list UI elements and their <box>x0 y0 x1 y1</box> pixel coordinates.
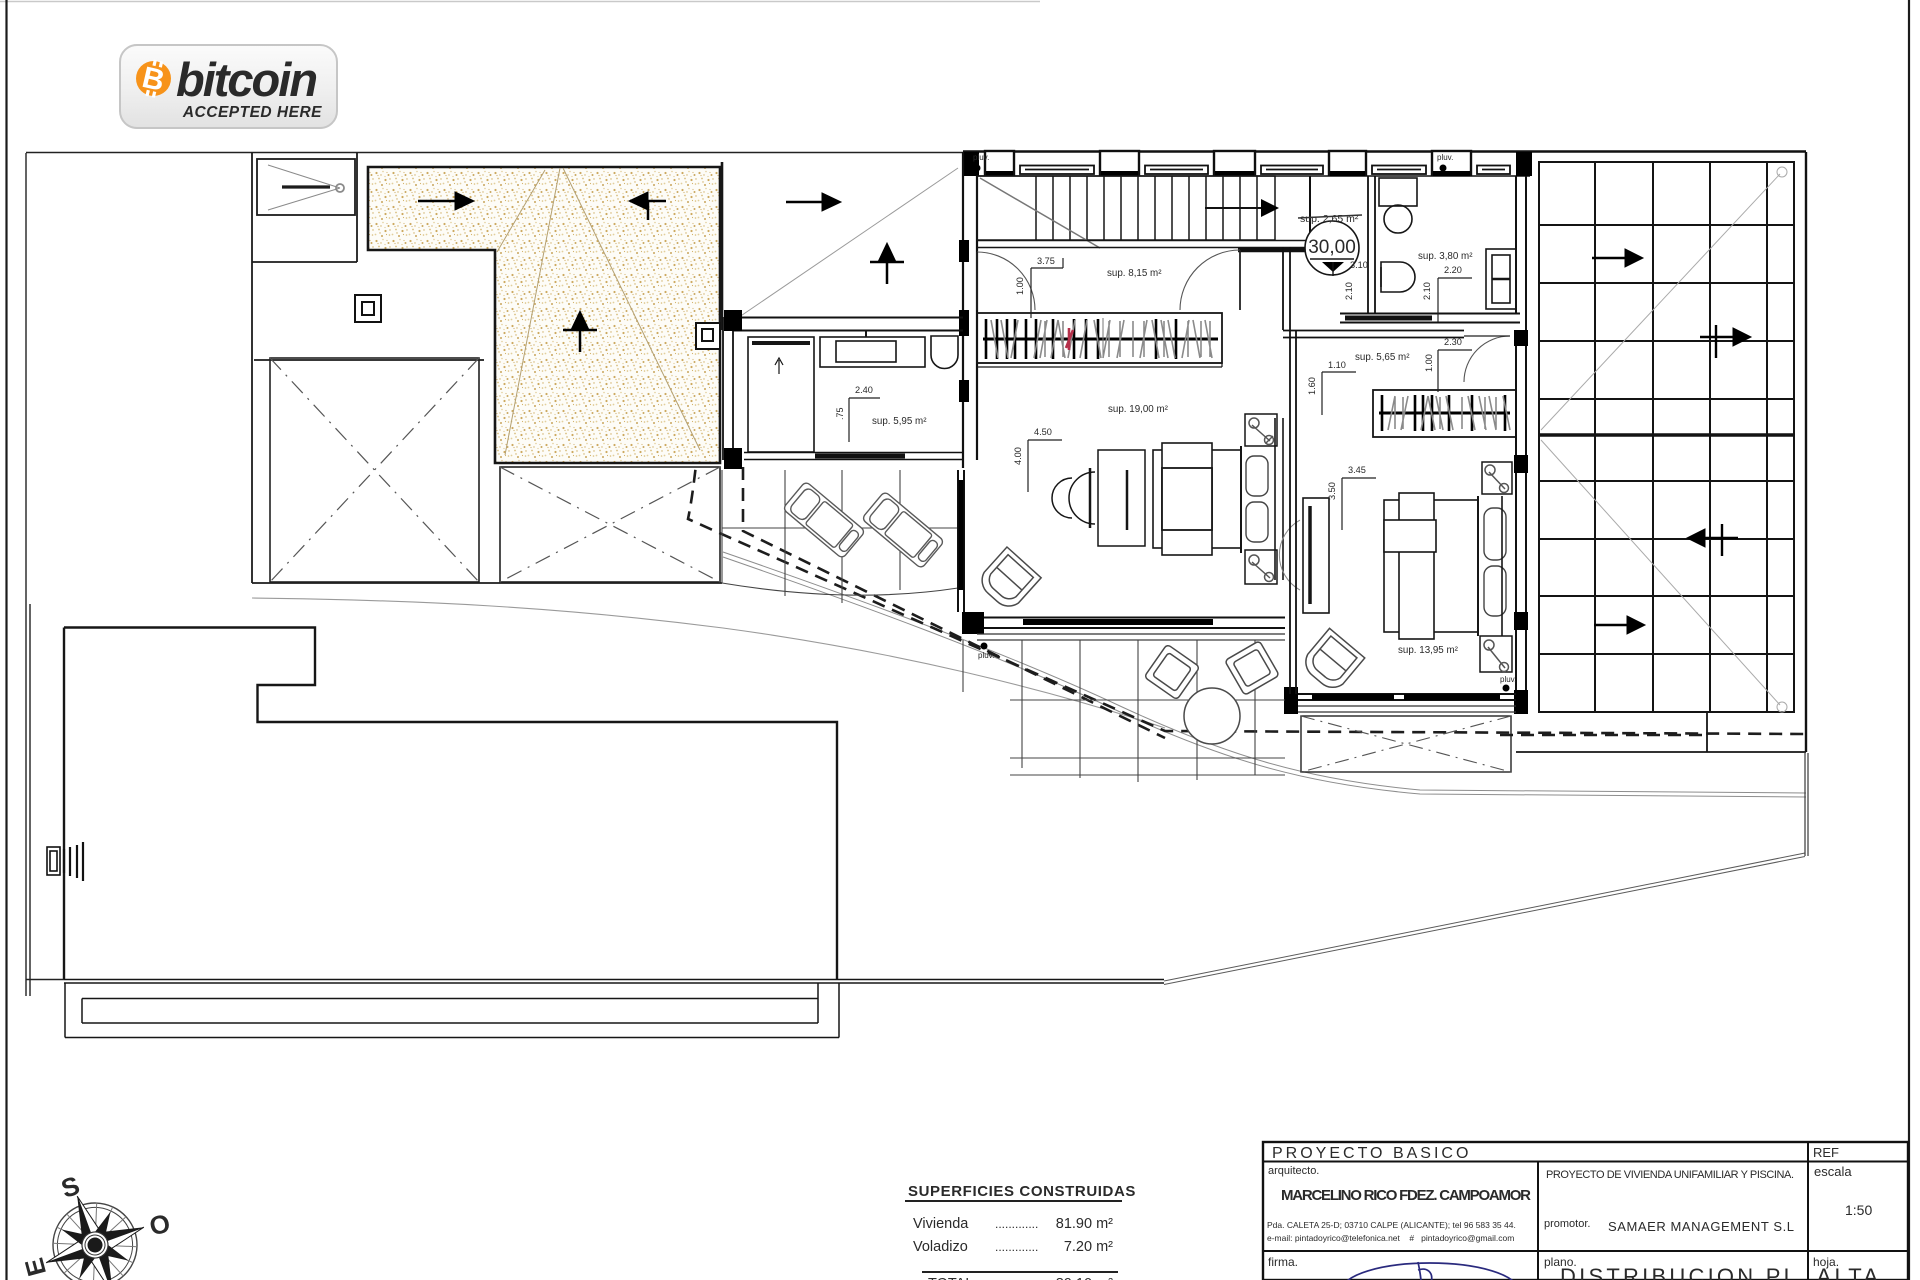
svg-text:e-mail: pintadoyrico@telefoni: e-mail: pintadoyrico@telefonica.net # pi… <box>1267 1233 1514 1243</box>
svg-text:PROYECTO DE VIVIENDA UNIFAMILI: PROYECTO DE VIVIENDA UNIFAMILIAR Y PISCI… <box>1546 1169 1794 1181</box>
svg-text:.............: ............. <box>995 1217 1038 1231</box>
svg-text:2.10: 2.10 <box>1422 282 1432 300</box>
svg-text:pluv.: pluv. <box>978 651 994 660</box>
svg-text:3.50: 3.50 <box>1327 482 1337 500</box>
svg-text:3.10: 3.10 <box>1350 260 1368 270</box>
svg-text:Pda. CALETA 25-D; 03710 CA: Pda. CALETA 25-D; 03710 CALPE (ALICANTE)… <box>1267 1220 1516 1230</box>
svg-text:1.00: 1.00 <box>1015 277 1025 295</box>
svg-text:1:50: 1:50 <box>1845 1202 1872 1218</box>
svg-text:1.00: 1.00 <box>1424 354 1434 372</box>
svg-text:2.40: 2.40 <box>855 385 873 395</box>
svg-text:81.90 m²: 81.90 m² <box>1056 1216 1113 1232</box>
svg-text:4.00: 4.00 <box>1013 447 1023 465</box>
svg-text:3.75: 3.75 <box>1037 256 1055 266</box>
svg-text:PROYECTO BASICO: PROYECTO BASICO <box>1272 1145 1471 1162</box>
svg-text:escala: escala <box>1814 1164 1852 1179</box>
svg-text:Vivienda: Vivienda <box>913 1216 969 1232</box>
svg-text:2.30: 2.30 <box>1444 337 1462 347</box>
svg-text:MARCELINO RICO FDEZ. CAMPOAMOR: MARCELINO RICO FDEZ. CAMPOAMOR <box>1281 1187 1531 1204</box>
svg-text:1.10: 1.10 <box>1328 360 1346 370</box>
svg-text:2.20: 2.20 <box>1444 265 1462 275</box>
svg-text:pluv.: pluv. <box>973 153 989 162</box>
svg-text:promotor.: promotor. <box>1544 1218 1590 1230</box>
svg-text:ACCEPTED HERE: ACCEPTED HERE <box>182 104 322 121</box>
svg-text:sup. 19,00 m²: sup. 19,00 m² <box>1108 404 1169 415</box>
svg-text:1.60: 1.60 <box>1307 377 1317 395</box>
svg-text:7.20 m²: 7.20 m² <box>1064 1239 1113 1255</box>
svg-text:sup. 13,95 m²: sup. 13,95 m² <box>1398 645 1459 656</box>
svg-text:2.10: 2.10 <box>1344 282 1354 300</box>
svg-text:arquitecto.: arquitecto. <box>1268 1165 1319 1177</box>
svg-text:Voladizo: Voladizo <box>913 1239 968 1255</box>
svg-text:TOTAL: TOTAL <box>928 1276 973 1280</box>
svg-text:firma.: firma. <box>1268 1255 1298 1269</box>
svg-text:sup. 2,65 m²: sup. 2,65 m² <box>1300 213 1359 225</box>
svg-text:sup. 5,65 m²: sup. 5,65 m² <box>1355 352 1410 363</box>
svg-text:pluv.: pluv. <box>1437 153 1453 162</box>
svg-text:bitcoin: bitcoin <box>176 53 316 106</box>
svg-text:sup. 8,15 m²: sup. 8,15 m² <box>1107 268 1162 279</box>
svg-text:SUPERFICIES CONSTRUIDAS: SUPERFICIES CONSTRUIDAS <box>908 1183 1136 1200</box>
svg-text:30,00: 30,00 <box>1308 237 1356 258</box>
svg-text:REF: REF <box>1813 1145 1839 1160</box>
svg-text:sup. 5,95 m²: sup. 5,95 m² <box>872 416 927 427</box>
svg-text:4.50: 4.50 <box>1034 427 1052 437</box>
svg-text:pluv.: pluv. <box>1500 675 1516 684</box>
svg-text:sup. 3,80 m²: sup. 3,80 m² <box>1418 251 1473 262</box>
svg-text:hoja.: hoja. <box>1813 1255 1839 1269</box>
svg-text:SAMAER MANAGEMENT S.L: SAMAER MANAGEMENT S.L <box>1608 1219 1794 1234</box>
svg-text:89.10 m²: 89.10 m² <box>1056 1276 1113 1280</box>
svg-text:3.45: 3.45 <box>1348 465 1366 475</box>
svg-text:.75: .75 <box>835 407 845 420</box>
svg-text:.............: ............. <box>995 1240 1038 1254</box>
